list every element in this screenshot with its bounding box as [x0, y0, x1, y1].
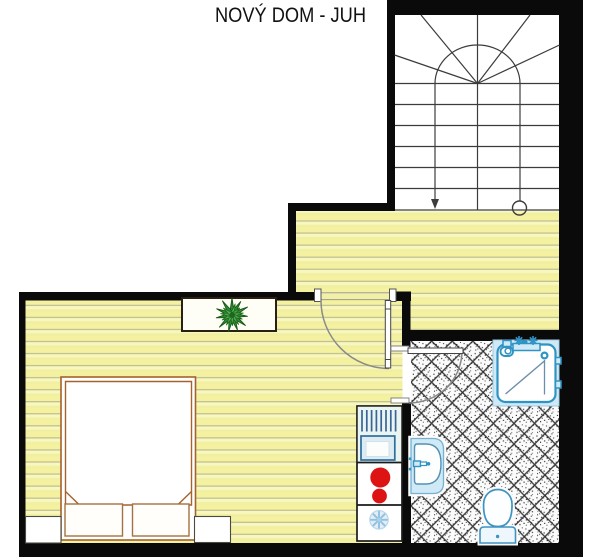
svg-text:NOVÝ DOM - JUH: NOVÝ DOM - JUH	[215, 2, 366, 27]
